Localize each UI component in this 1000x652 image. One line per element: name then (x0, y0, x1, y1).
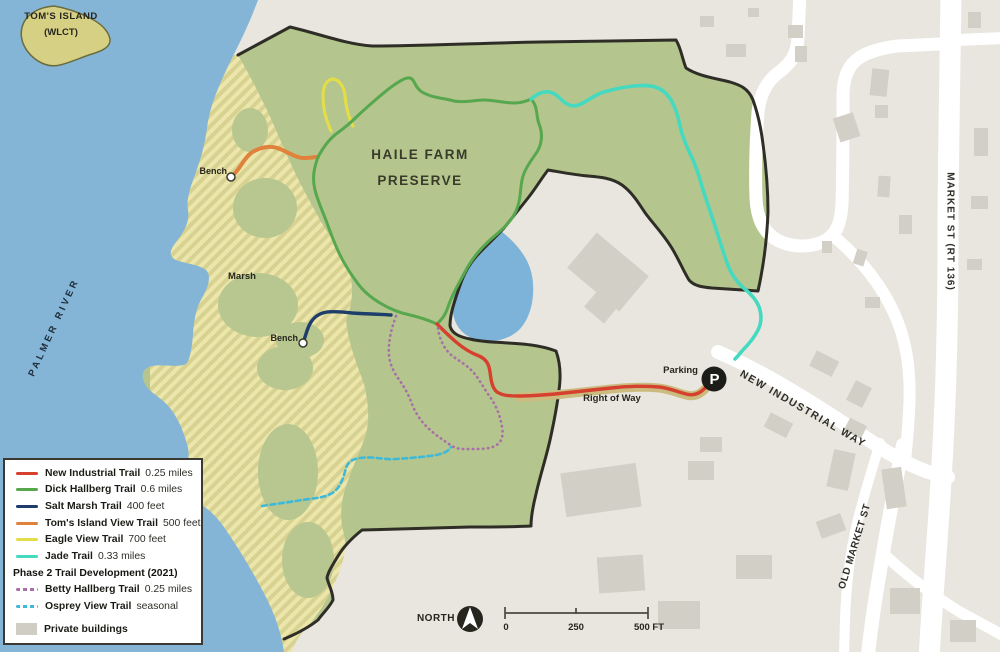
bench-label-south: Bench (248, 333, 298, 343)
preserve-label-line2: PRESERVE (330, 173, 510, 188)
legend-trail-value: 500 feet (163, 518, 201, 529)
legend-row-eagle-view: Eagle View Trail 700 feet (5, 531, 201, 548)
scale-tick-250: 250 (556, 622, 596, 633)
parking-symbol: P (706, 371, 723, 388)
bench-marker-north (227, 173, 235, 181)
road-loop-stub (958, 38, 1000, 40)
scale-tick-0: 0 (496, 622, 516, 633)
legend-panel: New Industrial Trail 0.25 miles Dick Hal… (3, 458, 203, 645)
legend-trail-value: 700 feet (128, 534, 166, 545)
legend-trail-name: Eagle View Trail (45, 534, 123, 545)
legend-row-new-industrial: New Industrial Trail 0.25 miles (5, 465, 201, 482)
trail-line-sample-betty-dashed (16, 588, 38, 591)
legend-trail-value: seasonal (136, 601, 178, 612)
legend-row-salt-marsh: Salt Marsh Trail 400 feet (5, 498, 201, 515)
legend-trail-name: Salt Marsh Trail (45, 501, 122, 512)
trail-line-sample-red (16, 472, 38, 475)
trail-line-sample-green (16, 488, 38, 491)
toms-island-label-line2: (WLCT) (6, 27, 116, 38)
legend-private-buildings-label: Private buildings (44, 624, 128, 635)
north-label: NORTH (405, 613, 455, 624)
legend-trail-value: 0.33 miles (98, 551, 145, 562)
right-of-way-label: Right of Way (560, 393, 664, 404)
legend-trail-name: Tom's Island View Trail (45, 518, 158, 529)
legend-row-jade: Jade Trail 0.33 miles (5, 548, 201, 565)
trail-line-sample-osprey-dashed (16, 605, 38, 608)
legend-row-betty-hallberg: Betty Hallberg Trail 0.25 miles (5, 582, 201, 599)
legend-trail-name: Osprey View Trail (45, 601, 131, 612)
legend-trail-value: 0.6 miles (141, 484, 183, 495)
marsh-label: Marsh (214, 271, 270, 282)
toms-island-label-line1: TOM'S ISLAND (6, 11, 116, 22)
legend-trail-name: Betty Hallberg Trail (45, 584, 140, 595)
legend-row-osprey-view: Osprey View Trail seasonal (5, 598, 201, 615)
legend-row-toms-island-view: Tom's Island View Trail 500 feet (5, 515, 201, 532)
north-arrow-icon (457, 606, 483, 632)
legend-phase2-header: Phase 2 Trail Development (2021) (5, 565, 201, 582)
private-buildings-swatch (16, 623, 37, 635)
bench-marker-south (299, 339, 307, 347)
bench-label-north: Bench (177, 166, 227, 176)
scale-tick-500: 500 FT (626, 622, 672, 633)
legend-trail-value: 400 feet (127, 501, 165, 512)
trail-line-sample-orange (16, 522, 38, 525)
trail-line-sample-jade (16, 555, 38, 558)
preserve-label-line1: HAILE FARM (330, 147, 510, 162)
legend-trail-value: 0.25 miles (145, 468, 192, 479)
legend-row-dick-hallberg: Dick Hallberg Trail 0.6 miles (5, 482, 201, 499)
trail-line-sample-navy (16, 505, 38, 508)
trail-map: TOM'S ISLAND (WLCT) PALMER RIVER Marsh H… (0, 0, 1000, 652)
trail-line-sample-yellow (16, 538, 38, 541)
legend-trail-value: 0.25 miles (145, 584, 192, 595)
legend-row-private-buildings: Private buildings (5, 621, 201, 638)
legend-trail-name: Jade Trail (45, 551, 93, 562)
legend-trail-name: New Industrial Trail (45, 468, 140, 479)
parking-label: Parking (640, 365, 698, 376)
market-st-label: MARKET ST (RT 136) (945, 152, 956, 312)
legend-trail-name: Dick Hallberg Trail (45, 484, 136, 495)
